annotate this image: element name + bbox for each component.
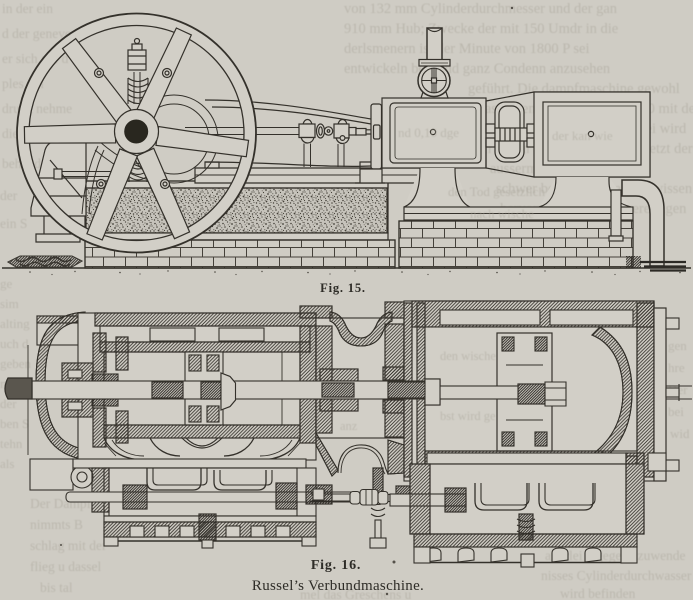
svg-text:nach wische: nach wische: [470, 206, 534, 221]
svg-text:derlsmenern ist der Minute von: derlsmenern ist der Minute von 1800 P se…: [344, 41, 590, 57]
svg-text:d der geneve: d der geneve: [2, 26, 71, 41]
svg-text:bst wird ge: bst wird ge: [440, 409, 496, 423]
svg-text:den Tod gesetzlich: den Tod gesetzlich: [448, 184, 546, 199]
svg-text:von 132 mm Cylinderdurchmesser: von 132 mm Cylinderdurchmesser und der g…: [344, 1, 618, 17]
svg-text:anz: anz: [340, 419, 358, 433]
svg-text:der kan wie: der kan wie: [552, 128, 613, 143]
svg-text:Fig. 16.: Fig. 16.: [311, 558, 361, 573]
svg-text:nimmts B: nimmts B: [30, 517, 83, 532]
svg-text:gen: gen: [668, 338, 687, 353]
svg-text:hre: hre: [668, 360, 685, 375]
svg-text:druck nehme: druck nehme: [2, 101, 72, 116]
svg-text:flieg u dassel: flieg u dassel: [30, 559, 101, 574]
svg-text:schlag mit der: schlag mit der: [30, 538, 107, 553]
svg-text:bei: bei: [668, 404, 684, 419]
svg-text:ein S: ein S: [0, 216, 27, 231]
svg-text:entwickeln bei grnd ganz Conde: entwickeln bei grnd ganz Condenn anzuseh…: [344, 61, 611, 77]
svg-text:tehn: tehn: [0, 436, 23, 451]
svg-text:ben S: ben S: [0, 416, 29, 431]
svg-text:bis tal: bis tal: [40, 580, 73, 595]
svg-text:alting: alting: [0, 316, 30, 331]
svg-text:nd 0,10 dge: nd 0,10 dge: [398, 125, 459, 140]
svg-text:wid: wid: [670, 426, 690, 441]
svg-text:den wische: den wische: [440, 349, 496, 363]
svg-text:Fig. 15.: Fig. 15.: [320, 281, 366, 295]
svg-text:910 mm Hub; Zwecke der mit 150: 910 mm Hub; Zwecke der mit 150 Umdr in d…: [344, 21, 618, 37]
svg-text:ge: ge: [0, 276, 13, 291]
svg-text:sim: sim: [0, 296, 19, 311]
svg-text:als: als: [0, 456, 14, 471]
svg-text:uch d: uch d: [0, 336, 29, 351]
svg-text:nisses Cylinderdurchwasser: nisses Cylinderdurchwasser: [541, 568, 692, 583]
svg-text:in der ein: in der ein: [2, 1, 53, 16]
svg-text:der: der: [0, 188, 18, 203]
svg-text:wird befinden: wird befinden: [560, 586, 636, 600]
svg-text:geben: geben: [0, 356, 32, 371]
svg-text:Russel’s Verbundmaschine.: Russel’s Verbundmaschine.: [252, 578, 424, 594]
